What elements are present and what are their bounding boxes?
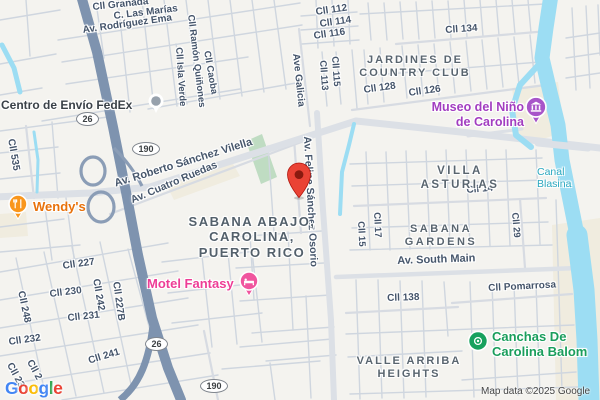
poi-label-wendys[interactable]: Wendy's [33,199,86,214]
route-shield-26-south: 26 [145,337,168,351]
logo-letter: e [53,378,62,398]
neighborhood-label-sabana-abajo: SABANA ABAJO, CAROLINA, PUERTO RICO [170,214,334,260]
street-label-cll-138: Cll 138 [387,292,420,305]
street-label-cll-134: Cll 134 [445,23,478,37]
destination-marker[interactable] [286,162,312,200]
lodging-pin-icon[interactable] [238,271,260,297]
map-canvas[interactable]: Cll Granada C. Las Marías Av. Rodríguez … [0,0,600,400]
poi-label-motel-fantasy[interactable]: Motel Fantasy [147,276,234,291]
restaurant-pin-icon[interactable] [7,194,29,220]
logo-letter: G [5,378,18,398]
logo-letter: g [39,378,49,398]
bridge [538,143,588,148]
street-label-cll-17: Cll 17 [371,212,384,238]
neighborhood-label-valle-arriba-heights: VALLE ARRIBA HEIGHTS [349,355,469,381]
place-dot-icon[interactable] [147,92,165,114]
water-label-canal-blasina: Canal Blasina [537,166,600,191]
route-shield-190-north: 190 [132,142,160,156]
poi-label-canchas-de-carolina[interactable]: Canchas De Carolina Balom [492,329,587,360]
map-attribution: Map data ©2025 Google [481,386,590,397]
neighborhood-label-jardines-de-country-club: JARDINES DE COUNTRY CLUB [356,54,474,80]
street-label-cll-115: Cll 115 [329,56,342,87]
logo-letter: o [18,378,28,398]
neighborhood-label-villa-asturias: VILLA ASTURIAS [399,165,521,192]
museum-pin-icon[interactable] [524,96,548,125]
poi-label-centro-de-envio-fedex[interactable]: Centro de Envío FedEx [1,98,132,112]
logo-letter: o [28,378,38,398]
route-shield-26-north: 26 [76,112,99,126]
neighborhood-label-sabana-gardens: SABANA GARDENS [391,223,491,249]
sports-pin-icon[interactable] [467,330,489,356]
google-logo[interactable]: Google [5,378,62,399]
poi-label-museo-del-nino[interactable]: Museo del Niño de Carolina [424,100,524,130]
street-label-cll-29: Cll 29 [509,212,522,238]
street-label-cll-15: Cll 15 [355,221,368,247]
street-label-cll-113: Cll 113 [317,60,330,91]
street-label-av-south-main: Av. South Main [397,252,476,268]
route-shield-190-south: 190 [200,379,228,393]
